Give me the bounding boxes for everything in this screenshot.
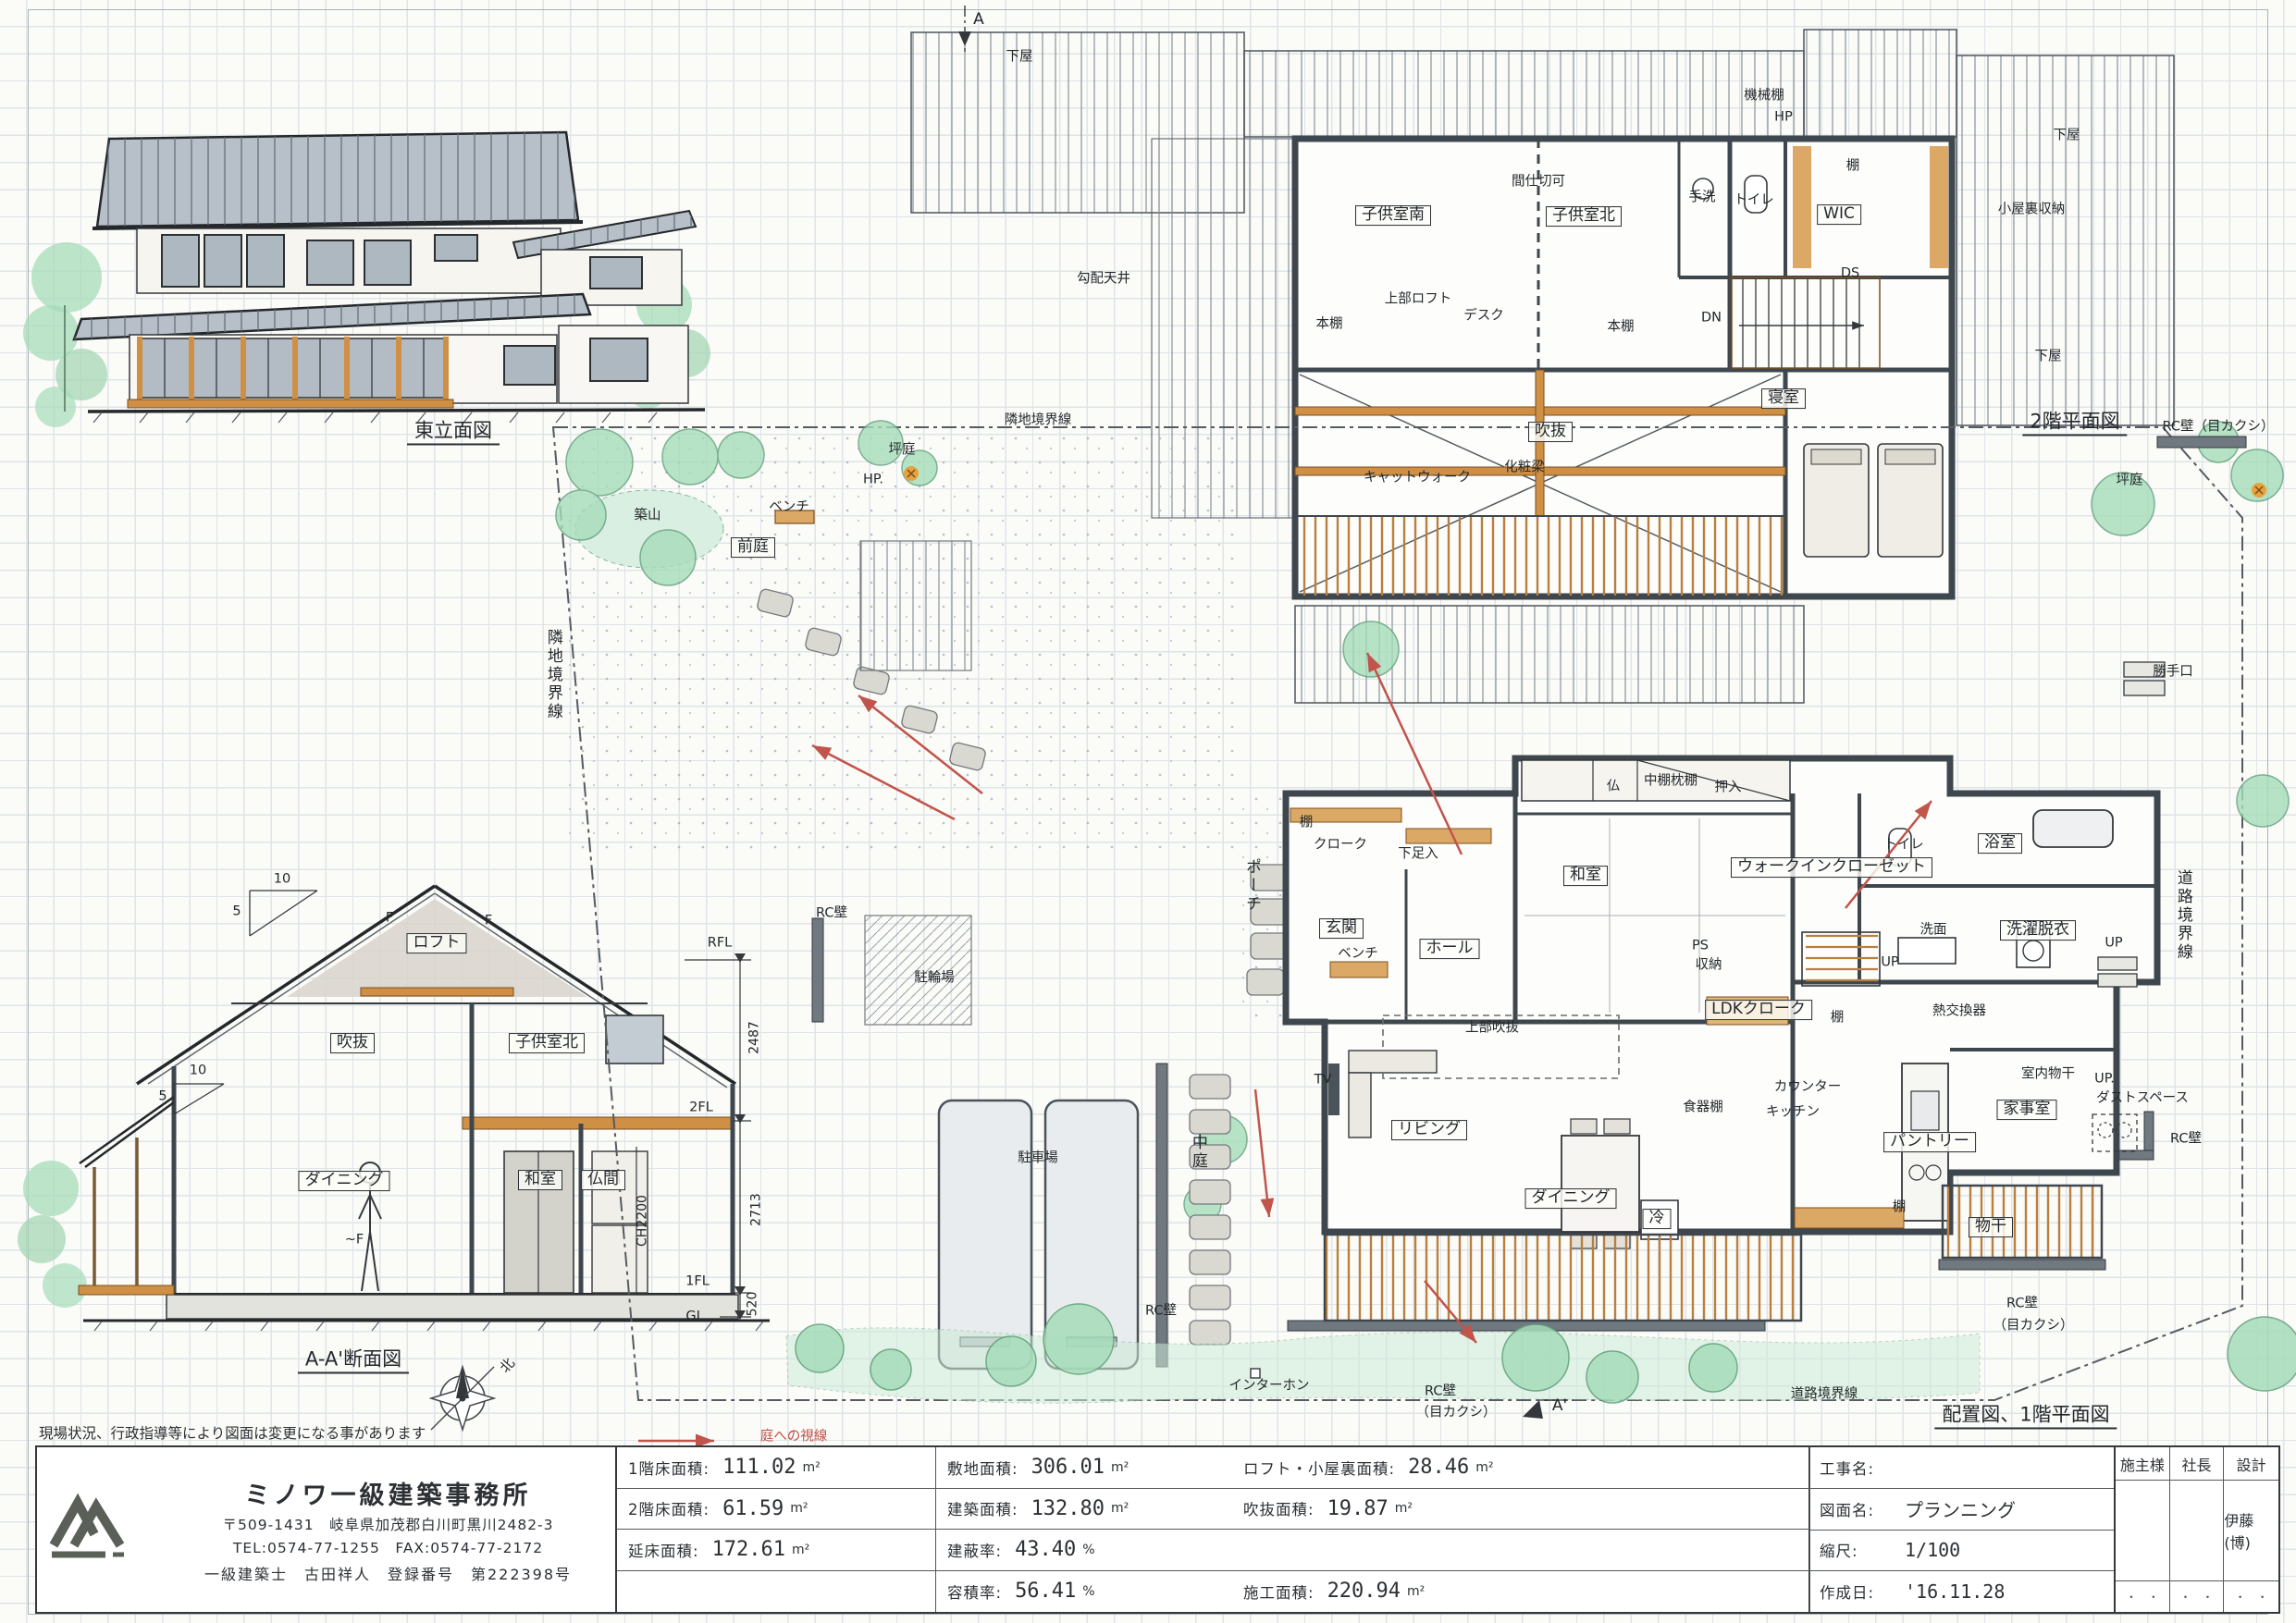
drawing-label: 坪庭	[2117, 473, 2143, 487]
drawing-label: リビング	[1391, 1120, 1467, 1140]
area-label: ロフト・小屋裏面積:	[1243, 1457, 1395, 1479]
drawing-label: 勝手口	[2153, 665, 2193, 679]
office-address: 〒509-1431 岐阜県加茂郡白川町黒川2482-3	[170, 1514, 606, 1534]
drawing-label: 子供室南	[1355, 205, 1431, 226]
drawing-label: カウンター	[1774, 1080, 1842, 1094]
drawing-label: （目カクシ）	[1416, 1406, 1497, 1420]
stamp-dots: ・ ・	[2224, 1580, 2278, 1612]
office-name: ミノワ一級建築事務所	[170, 1475, 606, 1511]
drawing-label: キッチン	[1766, 1105, 1820, 1119]
drawing-label: 坪庭	[889, 443, 916, 457]
area-value: 43.40	[1015, 1538, 1076, 1561]
minowa-logo-icon	[46, 1488, 157, 1571]
drawing-label: 棚	[1846, 159, 1860, 173]
area-label: 延床面積:	[628, 1539, 699, 1561]
drawing-label: ロフト	[407, 933, 467, 953]
drawing-label: A-A'断面図	[298, 1348, 409, 1373]
area-unit: %	[1082, 1543, 1094, 1557]
drawing-label: 上部ロフト	[1385, 292, 1452, 306]
drawing-label: 勾配天井	[1077, 272, 1130, 286]
stamp-dots: ・ ・	[2116, 1580, 2170, 1612]
drawing-label: 押入	[1715, 781, 1742, 794]
drawing-label: 洗濯脱衣	[2000, 920, 2076, 941]
drawing-label: 吹抜	[1528, 422, 1573, 442]
area-label: 1階床面積:	[628, 1457, 710, 1479]
project-label: 縮尺:	[1820, 1539, 1905, 1561]
drawing-label: 庭への視線	[760, 1430, 828, 1444]
drawing-label: 10	[274, 872, 290, 886]
drawing-label: クローク	[1314, 838, 1367, 852]
drawing-label: 棚	[1831, 1011, 1845, 1025]
area-cell	[617, 1571, 936, 1613]
area-summary-table: 1階床面積: 111.02 m² 敷地面積: 306.01 m² ロフト・小屋裏…	[617, 1447, 1810, 1612]
project-row: 工事名:	[1810, 1447, 2114, 1489]
project-value: '16.11.28	[1905, 1580, 2005, 1603]
area-cell: ロフト・小屋裏面積: 28.46 m²	[1232, 1447, 1810, 1489]
drawing-label: 下屋	[2054, 129, 2080, 142]
project-row: 図面名: プランニング	[1810, 1489, 2114, 1531]
drawing-label: 間仕切可	[1512, 175, 1565, 189]
drawing-label: （目カクシ）	[1994, 1319, 2074, 1333]
drawing-label: RFL	[708, 936, 733, 950]
drawing-label: RC壁	[816, 906, 847, 920]
drawing-label: 玄関	[1319, 918, 1364, 939]
drawing-label: ウォークインクローゼット	[1731, 857, 1932, 878]
drawing-label: PS	[1692, 939, 1709, 953]
area-unit: %	[1082, 1584, 1094, 1599]
drawing-label: 子供室北	[1546, 206, 1622, 227]
drawing-label: トイレ	[1883, 838, 1924, 852]
drawing-label: 寝室	[1761, 388, 1806, 409]
drawing-label: 小屋裏収納	[1998, 203, 2066, 216]
drawing-label: 化粧梁	[1504, 461, 1545, 474]
drawing-label: ベンチ	[1338, 947, 1378, 961]
designer-name: 伊藤(博)	[2224, 1481, 2278, 1580]
drawing-label: RC壁	[1425, 1384, 1456, 1398]
drawing-label: トイレ	[1734, 193, 1774, 207]
drawing-label: 機械棚	[1744, 89, 1784, 103]
drawing-label: 和室	[518, 1170, 562, 1190]
drawing-label: RC壁	[2170, 1132, 2202, 1146]
drawing-label: 下足入	[1398, 847, 1438, 861]
drawing-label: 駐輪場	[914, 971, 955, 985]
area-cell: 施工面積: 220.94 m²	[1232, 1571, 1810, 1613]
drawing-label: A'	[1552, 1398, 1567, 1415]
drawing-label: GL	[685, 1309, 703, 1323]
area-cell: 敷地面積: 306.01 m²	[936, 1447, 1232, 1489]
project-info-table: 工事名: 図面名: プランニング 縮尺: 1/100 作成日: '16.11.2…	[1810, 1447, 2116, 1612]
area-unit: m²	[1407, 1584, 1425, 1599]
tree-icon	[18, 1161, 87, 1308]
drawing-label: 洗面	[1920, 923, 1947, 937]
drawing-label: RC壁	[1145, 1304, 1177, 1318]
drawing-label: 駐車場	[1018, 1151, 1058, 1165]
area-cell: 建築面積: 132.80 m²	[936, 1489, 1232, 1531]
drawing-label: 棚	[1893, 1200, 1907, 1214]
area-value: 172.61	[712, 1538, 785, 1561]
drawing-label: 上部吹抜	[1465, 1021, 1519, 1035]
stamp-cell	[2170, 1481, 2225, 1580]
drawing-label: パントリー	[1883, 1132, 1976, 1152]
area-unit: m²	[792, 1543, 809, 1557]
area-cell: 建蔽率: 43.40 %	[936, 1530, 1232, 1571]
drawing-label: 仏間	[581, 1170, 625, 1190]
drawing-label: 10	[190, 1064, 206, 1077]
compass-icon	[431, 1367, 494, 1430]
project-value: プランニング	[1905, 1495, 2016, 1522]
drawing-label: 冷	[1643, 1209, 1672, 1229]
area-unit: m²	[1111, 1501, 1129, 1516]
drawing-linework	[0, 0, 2296, 1623]
drawing-label: 1FL	[685, 1274, 710, 1288]
east-elevation-drawing	[23, 132, 710, 427]
drawing-label: CH2200	[636, 1195, 650, 1247]
area-value: 19.87	[1327, 1497, 1389, 1520]
area-unit: m²	[1111, 1460, 1129, 1475]
drawing-label: ホール	[1420, 939, 1480, 959]
stamp-col-design: 設計	[2224, 1447, 2278, 1481]
project-label: 工事名:	[1820, 1457, 1905, 1479]
area-label: 吹抜面積:	[1243, 1497, 1315, 1519]
drawing-label: F	[386, 911, 393, 925]
drawing-label: F	[485, 914, 492, 928]
drawing-label: 子供室北	[509, 1033, 585, 1053]
area-label: 容積率:	[947, 1580, 1002, 1603]
drawing-label: 中庭	[1189, 1134, 1205, 1171]
area-label: 2階床面積:	[628, 1497, 710, 1519]
architect-license: 一級建築士 古田祥人 登録番号 第222398号	[170, 1562, 606, 1584]
area-cell: 吹抜面積: 19.87 m²	[1232, 1489, 1810, 1531]
drawing-label: TV	[1315, 1073, 1332, 1087]
drawing-label: 収納	[1696, 958, 1722, 972]
drawing-label: 5	[158, 1089, 167, 1103]
drawing-label: キャットウォーク	[1364, 471, 1471, 485]
drawing-label: RC壁	[2006, 1297, 2038, 1310]
drawing-label: 道路境界線	[2174, 869, 2191, 962]
drawing-label: HP	[1774, 110, 1793, 124]
drawing-label: UP	[2105, 936, 2122, 950]
drawing-label: 2階平面図	[2022, 411, 2127, 436]
area-cell: 1階床面積: 111.02 m²	[617, 1447, 936, 1489]
drawing-label: ~F	[345, 1233, 364, 1247]
area-cell	[1232, 1530, 1810, 1571]
drawing-label: 5	[232, 904, 241, 918]
project-value: 1/100	[1905, 1539, 1960, 1561]
area-value: 56.41	[1015, 1580, 1076, 1603]
drawing-label: 520	[747, 1292, 760, 1317]
drawing-label: 棚	[1300, 816, 1314, 830]
drawing-label: ベンチ	[769, 500, 809, 514]
stamp-dots: ・ ・	[2170, 1580, 2225, 1612]
drawing-label: 築山	[635, 509, 661, 523]
drawing-label: 食器棚	[1683, 1100, 1723, 1114]
area-unit: m²	[803, 1460, 821, 1475]
drawing-label: 家事室	[1997, 1100, 2057, 1120]
drawing-label: 熱交換器	[1932, 1004, 1986, 1018]
drawing-label: LDKクローク	[1705, 1000, 1812, 1020]
drawing-label: 2713	[750, 1193, 764, 1226]
office-info: ミノワ一級建築事務所 〒509-1431 岐阜県加茂郡白川町黒川2482-3 T…	[37, 1447, 617, 1612]
area-cell: 延床面積: 172.61 m²	[617, 1530, 936, 1571]
drawing-label: デスク	[1463, 309, 1504, 323]
area-unit: m²	[1395, 1501, 1413, 1516]
drawing-label: 道路境界線	[1791, 1387, 1858, 1401]
drawing-label: 物干	[1969, 1217, 2013, 1237]
drawing-label: 浴室	[1978, 833, 2022, 854]
office-telfax: TEL:0574-77-1255 FAX:0574-77-2172	[170, 1537, 606, 1557]
drawing-label: 仏	[1607, 780, 1621, 793]
area-cell: 2階床面積: 61.59 m²	[617, 1489, 936, 1531]
drawing-label: ダイニング	[299, 1171, 390, 1191]
area-value: 61.59	[722, 1497, 784, 1520]
drawing-label: ダイニング	[1525, 1188, 1617, 1209]
drawing-label: 2FL	[689, 1100, 713, 1114]
drawing-label: ダストスペース	[2096, 1091, 2189, 1105]
area-value: 132.80	[1031, 1497, 1105, 1520]
drawing-label: ポーチ	[1242, 858, 1259, 914]
section-drawing	[18, 886, 770, 1331]
drawing-label: UP.	[2094, 1072, 2115, 1086]
drawing-label: 配置図、1階平面図	[1934, 1404, 2117, 1429]
area-label: 建築面積:	[947, 1497, 1018, 1519]
drawing-label: 手洗	[1689, 191, 1716, 204]
drawing-label: UP	[1881, 955, 1898, 969]
drawing-label: 室内物干	[2021, 1067, 2075, 1081]
drawing-label: 和室	[1563, 866, 1608, 886]
project-label: 作成日:	[1820, 1580, 1905, 1603]
drawing-label: 中棚枕棚	[1644, 774, 1697, 788]
architectural-plan-sheet: { "sheet": { "disclaimer": "現場状況、行政指導等によ…	[0, 0, 2296, 1623]
area-label: 施工面積:	[1243, 1580, 1315, 1603]
drawing-label: HP.	[863, 473, 883, 486]
area-value: 28.46	[1408, 1456, 1469, 1479]
drawing-label: DN	[1701, 311, 1722, 325]
drawing-label: 下屋	[1006, 50, 1033, 64]
area-label: 建蔽率:	[947, 1539, 1002, 1561]
stamp-col-owner: 施主様	[2116, 1447, 2170, 1481]
drawing-label: 2487	[748, 1021, 762, 1054]
drawing-label: RC壁（目カクシ）	[2163, 420, 2275, 434]
project-row: 作成日: '16.11.28	[1810, 1571, 2114, 1612]
drawing-label: 隣地境界線	[544, 629, 561, 721]
drawing-label: 吹抜	[330, 1033, 375, 1053]
stamp-col-president: 社長	[2170, 1447, 2225, 1481]
drawing-label: 東立面図	[407, 420, 500, 445]
area-cell: 容積率: 56.41 %	[936, 1571, 1232, 1613]
approval-stamp-grid: 施主様 社長 設計 伊藤(博) ・ ・ ・ ・ ・ ・	[2116, 1447, 2278, 1612]
drawing-label: 前庭	[731, 537, 775, 558]
drawing-label: 隣地境界線	[1005, 413, 1072, 427]
title-block: ミノワ一級建築事務所 〒509-1431 岐阜県加茂郡白川町黒川2482-3 T…	[35, 1445, 2280, 1614]
disclaimer-note: 現場状況、行政指導等により図面は変更になる事があります	[39, 1422, 426, 1443]
drawing-label: WIC	[1817, 204, 1861, 225]
stamp-cell	[2116, 1481, 2170, 1580]
drawing-label: 下屋	[2035, 350, 2062, 363]
area-label: 敷地面積:	[947, 1457, 1018, 1479]
project-label: 図面名:	[1820, 1498, 1905, 1520]
drawing-label: 本棚	[1316, 317, 1343, 331]
drawing-label: インターホン	[1229, 1379, 1310, 1393]
area-unit: m²	[790, 1501, 808, 1516]
project-row: 縮尺: 1/100	[1810, 1531, 2114, 1572]
area-value: 220.94	[1327, 1580, 1401, 1603]
area-value: 111.02	[722, 1456, 796, 1479]
drawing-label: A	[973, 12, 984, 29]
drawing-label: 本棚	[1608, 320, 1635, 334]
area-unit: m²	[1475, 1460, 1493, 1475]
drawing-label: DS	[1841, 266, 1859, 280]
area-value: 306.01	[1031, 1456, 1105, 1479]
